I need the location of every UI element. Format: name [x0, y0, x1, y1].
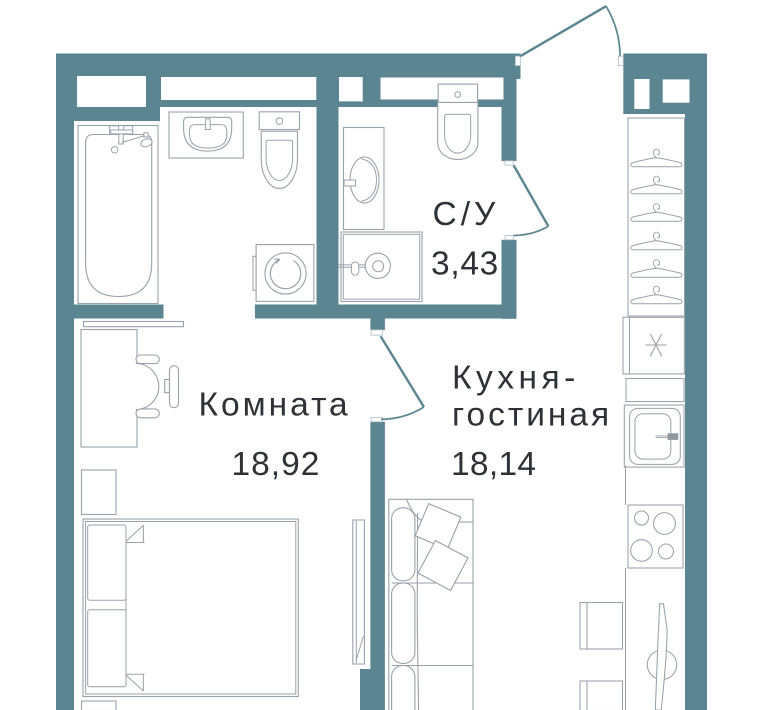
- svg-text:18,14: 18,14: [451, 446, 536, 483]
- svg-text:Комната: Комната: [199, 387, 351, 424]
- svg-text:С/У: С/У: [433, 196, 500, 233]
- svg-text:гостиная: гостиная: [452, 397, 612, 434]
- svg-text:Кухня-: Кухня-: [452, 360, 580, 397]
- svg-text:3,43: 3,43: [431, 246, 499, 283]
- svg-text:18,92: 18,92: [232, 446, 321, 483]
